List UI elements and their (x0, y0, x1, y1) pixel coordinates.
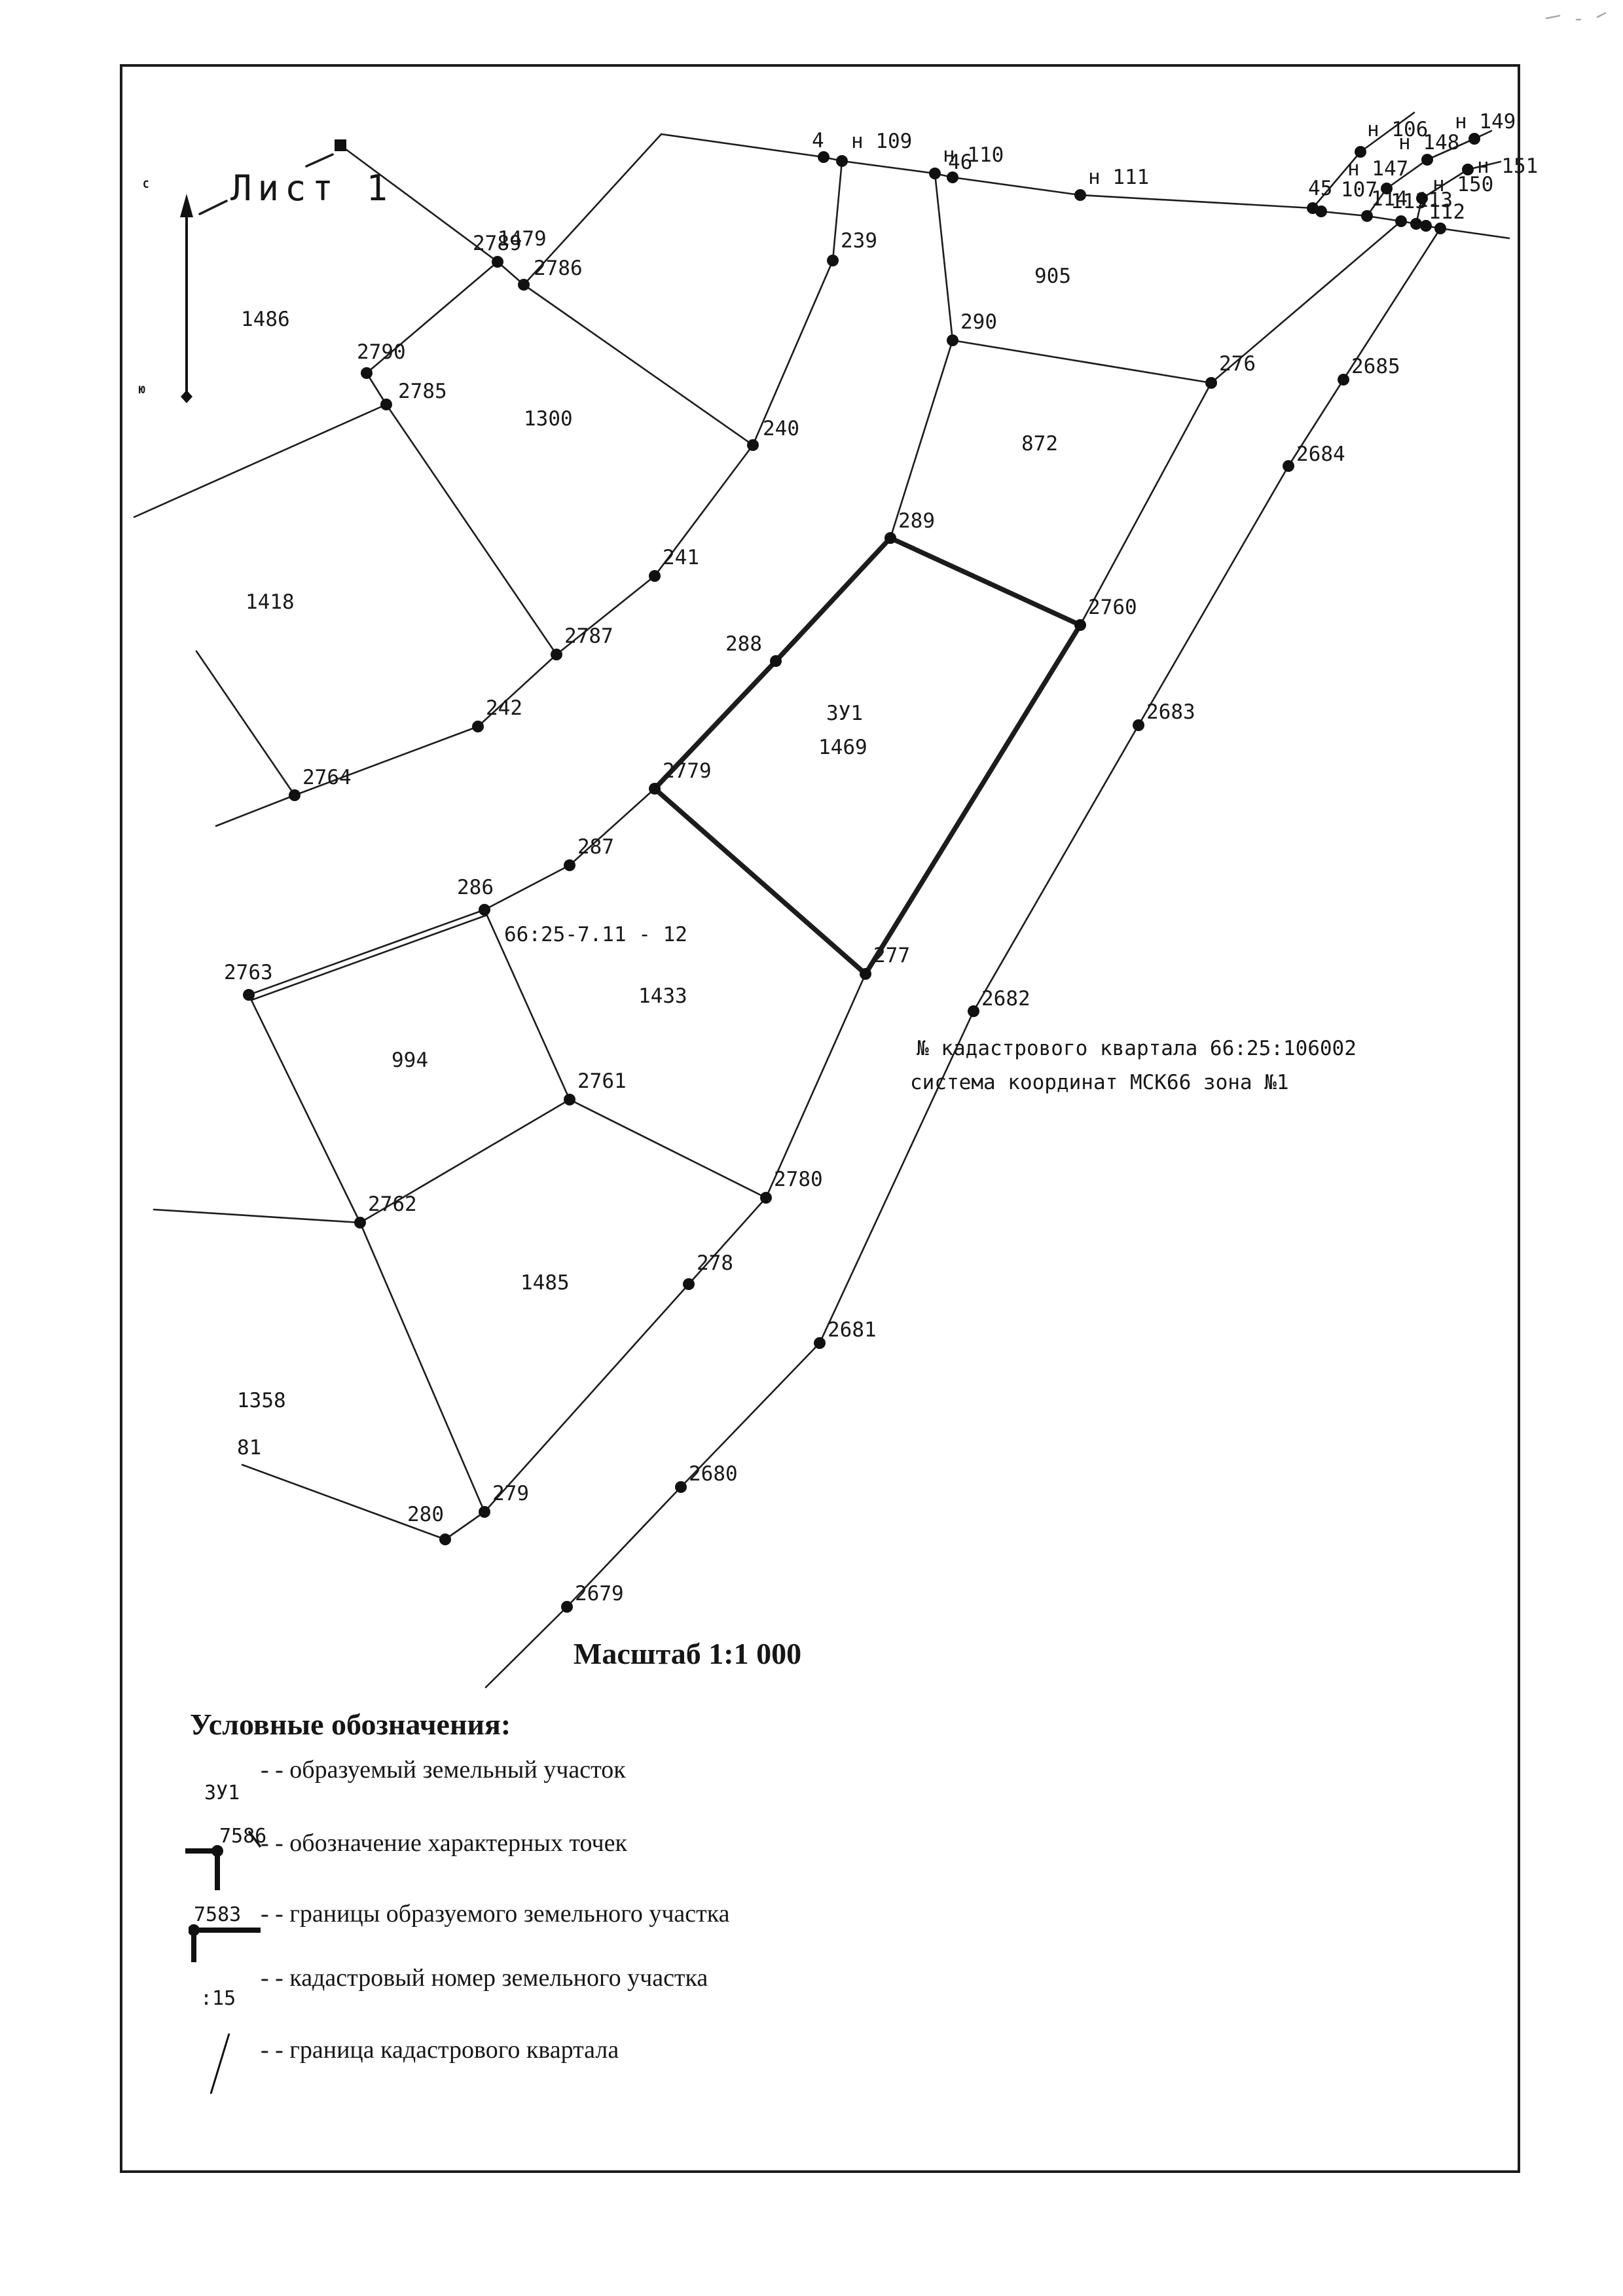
survey-point-н147 (1381, 183, 1393, 194)
survey-point-н106 (1355, 146, 1366, 158)
survey-point-н109 (836, 155, 848, 167)
survey-point-115 (1410, 218, 1422, 230)
parcel-label-905: 905 (1034, 264, 1071, 288)
survey-point-239 (827, 255, 839, 266)
survey-point-278 (683, 1278, 695, 1290)
survey-point-н110 (929, 168, 941, 179)
south-diamond (181, 390, 192, 403)
branch-290 (935, 173, 953, 340)
parcel-zu1-boundary (655, 538, 1080, 974)
line-2761-2780 (570, 1100, 766, 1198)
parcel-label-872: 872 (1021, 432, 1058, 456)
line-2762-279 (360, 1223, 484, 1512)
line-276-2760 (1080, 383, 1211, 625)
parcel-label-662571112: 66:25-7.11 - 12 (504, 923, 687, 946)
parcel-label-1479: 1479 (498, 227, 547, 251)
coordinate-system-note: система координат МСК66 зона №1 (910, 1071, 1289, 1094)
line-2785-border (134, 404, 386, 517)
survey-point-2790 (361, 367, 373, 379)
point-label-4: 4 (812, 129, 824, 152)
survey-point-107 (1361, 210, 1373, 222)
point-label-н109: н 109 (851, 130, 912, 153)
spur-2764-up (196, 651, 295, 795)
point-label-46: 46 (948, 151, 972, 174)
point-label-2683: 2683 (1146, 700, 1195, 724)
point-label-2785: 2785 (398, 380, 447, 403)
survey-point-289 (884, 532, 896, 544)
legend-symbol-label-15: :15 (200, 1987, 236, 2010)
scan-mark-3 (1597, 13, 1605, 17)
line-286-2763-a (249, 910, 484, 995)
legend-symbol-quarter-border-icon (203, 2026, 236, 2104)
survey-point-2679 (561, 1601, 573, 1613)
point-label-277: 277 (873, 944, 910, 967)
point-label-276: 276 (1219, 352, 1256, 376)
point-label-287: 287 (577, 835, 614, 859)
cadastral-plan-page: 2789278627902785240241278724227642394н 1… (0, 0, 1623, 2296)
chain-2779-287-286 (484, 789, 655, 910)
survey-point-2761 (564, 1094, 575, 1105)
survey-point-2680 (675, 1481, 687, 1493)
parcel-label-1469: 1469 (818, 736, 867, 759)
point-label-2787: 2787 (564, 624, 613, 648)
point-label-2763: 2763 (224, 961, 273, 984)
point-label-112: 112 (1429, 200, 1465, 224)
survey-point-н111 (1074, 189, 1086, 201)
spur-2764-down (216, 795, 295, 826)
legend-symbol-label-zu1: ЗУ1 (204, 1782, 240, 1804)
survey-point-2683 (1133, 719, 1144, 731)
legend-row-parcel: - - образуемый земельный участок (261, 1755, 626, 1784)
survey-point-2789 (492, 256, 503, 268)
compass-south-label: Ю (139, 384, 145, 396)
point-label-н111: н 111 (1088, 166, 1149, 189)
survey-point-4 (818, 151, 830, 163)
survey-point-112 (1434, 223, 1446, 234)
line-81-280 (242, 1465, 445, 1539)
survey-point-2779 (649, 783, 661, 795)
point-label-279: 279 (492, 1482, 529, 1505)
parcel-label-994: 994 (392, 1049, 428, 1072)
survey-point-287 (564, 859, 575, 871)
survey-point-2780 (760, 1192, 772, 1204)
north-arrow-head (180, 194, 193, 217)
survey-point-н148 (1421, 154, 1433, 166)
point-label-н148: н 148 (1398, 131, 1459, 154)
sheet-title: Лист 1 (230, 168, 393, 209)
point-label-242: 242 (486, 696, 522, 720)
point-label-45: 45 (1308, 177, 1332, 200)
point-label-2780: 2780 (774, 1168, 823, 1191)
point-label-240: 240 (763, 417, 799, 440)
branch-239 (753, 161, 842, 445)
survey-point-277 (860, 968, 871, 980)
line-290-289 (890, 340, 953, 538)
survey-point-114 (1395, 215, 1407, 227)
spur-2762-left (154, 1210, 360, 1223)
parcel-label-ЗУ1: ЗУ1 (826, 702, 863, 725)
survey-point-2762 (354, 1217, 366, 1229)
line-279-280 (445, 1512, 484, 1539)
line-2763-2762 (249, 995, 360, 1223)
survey-point-290 (947, 334, 958, 346)
compass-north-label: С (143, 178, 149, 190)
survey-point-2787 (551, 649, 562, 660)
point-label-2679: 2679 (575, 1582, 624, 1605)
survey-point-279 (479, 1506, 490, 1518)
survey-point-2760 (1074, 619, 1086, 631)
point-label-н151: н 151 (1477, 154, 1538, 178)
survey-point-242 (472, 721, 484, 732)
line-290-276 (953, 340, 1211, 383)
parcel-label-1433: 1433 (638, 984, 687, 1008)
point-label-2681: 2681 (828, 1318, 877, 1342)
legend-row-points: - - обозначение характерных точек (261, 1829, 627, 1857)
point-label-н149: н 149 (1455, 110, 1516, 134)
point-label-2761: 2761 (577, 1069, 627, 1093)
point-label-2762: 2762 (368, 1193, 417, 1216)
line-2785-2787 (386, 404, 556, 655)
point-label-239: 239 (841, 229, 877, 253)
parcel-label-1486: 1486 (241, 308, 290, 331)
survey-point-280 (439, 1534, 451, 1545)
survey-point-2681 (814, 1337, 826, 1349)
point-label-2760: 2760 (1088, 596, 1137, 619)
survey-point-unlabeled (335, 139, 346, 151)
survey-point-2684 (1283, 460, 1294, 472)
point-label-288: 288 (725, 632, 762, 656)
point-label-2684: 2684 (1296, 442, 1345, 466)
point-label-н147: н 147 (1347, 157, 1408, 181)
survey-point-288 (770, 655, 782, 667)
survey-point-2764 (289, 789, 301, 801)
survey-point-2682 (968, 1005, 979, 1017)
point-label-2682: 2682 (981, 987, 1030, 1011)
title-leader-dash-2 (306, 154, 333, 166)
survey-point-2685 (1338, 374, 1349, 386)
survey-point-2786 (518, 279, 530, 291)
map-layer: 2789278627902785240241278724227642394н 1… (134, 13, 1605, 1687)
survey-point-2763 (243, 989, 255, 1001)
survey-point-н149 (1468, 133, 1480, 145)
point-label-286: 286 (457, 876, 494, 899)
point-label-280: 280 (407, 1503, 444, 1526)
scale-label: Масштаб 1:1 000 (458, 1636, 917, 1671)
point-label-278: 278 (697, 1251, 733, 1275)
point-label-2680: 2680 (689, 1462, 738, 1486)
survey-point-н151 (1462, 164, 1474, 175)
survey-point-240 (747, 439, 759, 451)
legend-symbol-boundary-corner-icon (183, 1826, 275, 1898)
point-label-241: 241 (663, 546, 699, 569)
legend-symbol-border-line-icon (189, 1923, 267, 1969)
point-label-2779: 2779 (663, 759, 712, 783)
survey-point-н150 (1416, 192, 1428, 204)
point-label-289: 289 (898, 509, 935, 533)
parcel-label-1358: 1358 (237, 1389, 286, 1412)
survey-point-286 (479, 904, 490, 916)
legend-row-cadastral-number: - - кадастровый номер земельного участка (261, 1964, 708, 1992)
parcel-label-1300: 1300 (524, 407, 573, 431)
parcel-label-1418: 1418 (246, 590, 295, 614)
survey-point-276 (1205, 377, 1217, 389)
parcel-label-1485: 1485 (520, 1271, 570, 1295)
legend-row-borders: - - границы образуемого земельного участ… (261, 1899, 730, 1928)
survey-point-unlabeled (1315, 206, 1327, 217)
line-286-2763-b (251, 915, 487, 1000)
scan-mark-1 (1546, 16, 1559, 18)
point-label-2790: 2790 (357, 340, 406, 364)
parcel-label-81: 81 (237, 1436, 261, 1460)
legend-heading: Условные обозначения: (190, 1707, 511, 1742)
survey-point-241 (649, 570, 661, 582)
north-arrow (180, 194, 193, 403)
point-label-2685: 2685 (1351, 355, 1400, 378)
quarter-number-note: № кадастрового квартала 66:25:106002 (917, 1037, 1357, 1060)
line-277-2780 (766, 974, 866, 1198)
legend-row-quarter-border: - - граница кадастрового квартала (261, 2036, 619, 2064)
title-leader-dash-1 (200, 201, 227, 214)
point-label-2764: 2764 (302, 766, 352, 789)
point-label-2786: 2786 (534, 257, 583, 280)
survey-point-2785 (380, 399, 392, 410)
point-label-290: 290 (960, 310, 997, 334)
